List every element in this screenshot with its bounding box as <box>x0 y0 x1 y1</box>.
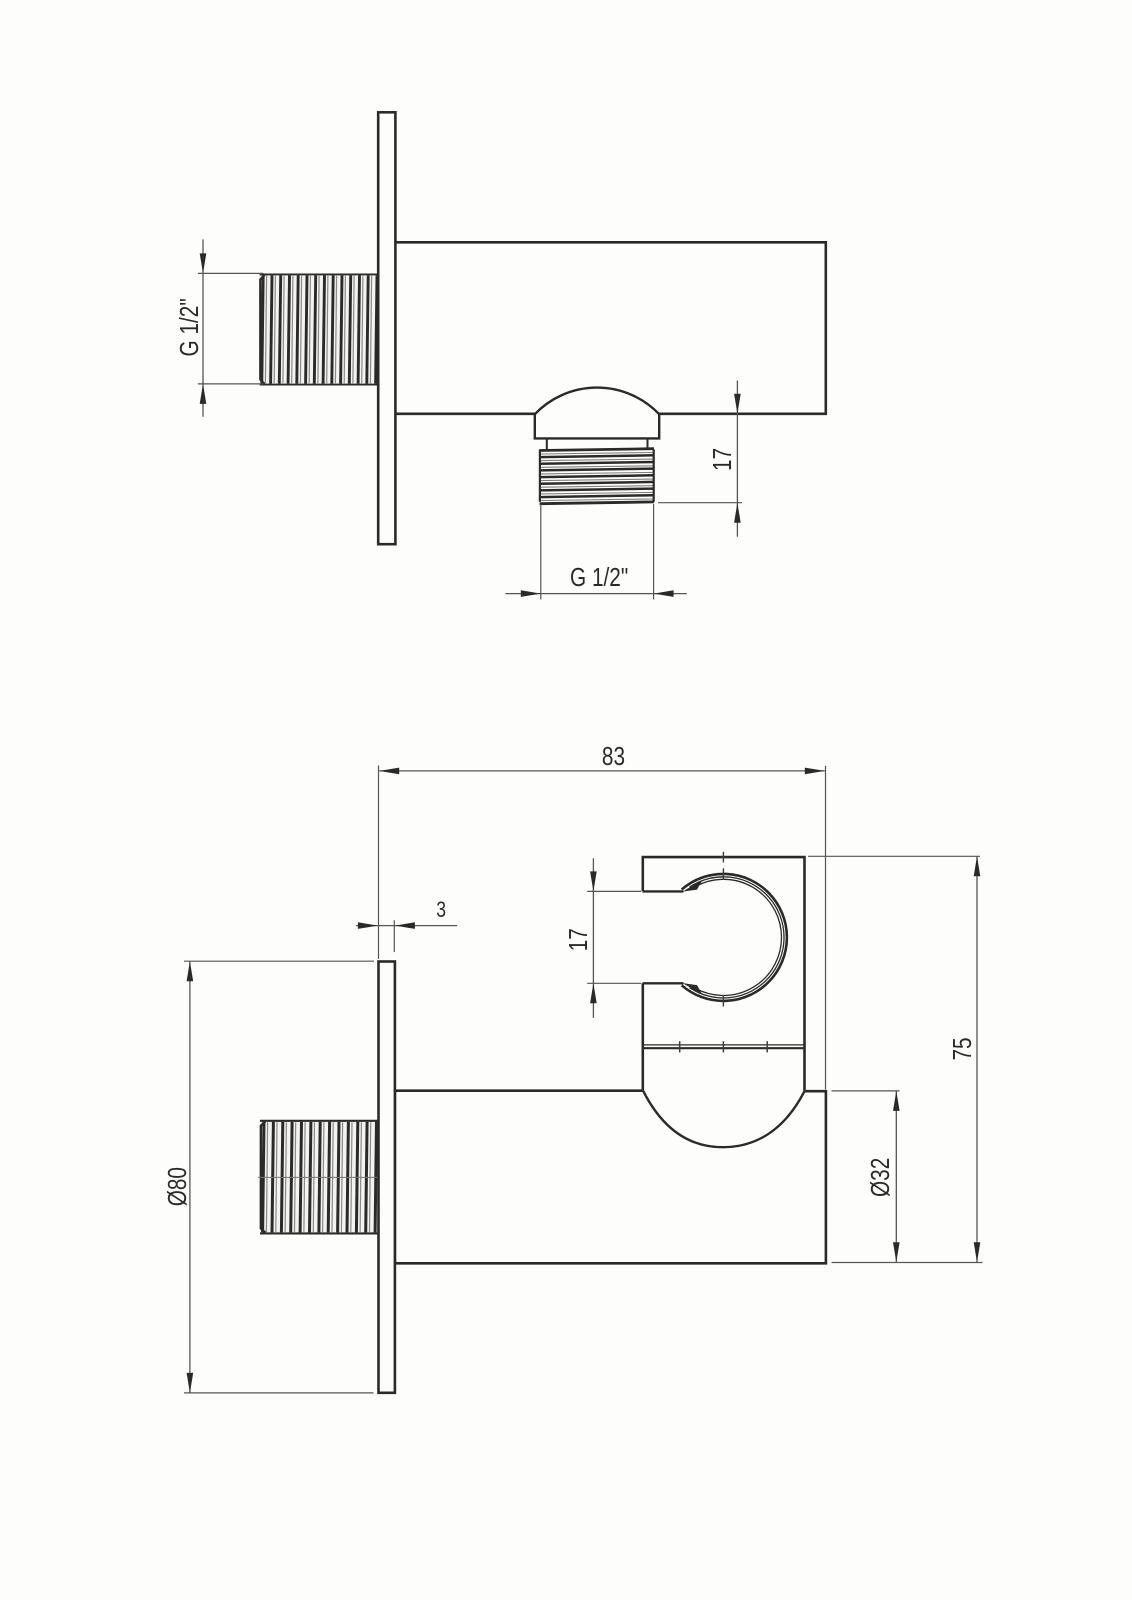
svg-text:G 1/2": G 1/2" <box>570 563 628 592</box>
svg-text:17: 17 <box>708 448 737 471</box>
svg-text:3: 3 <box>436 898 446 922</box>
svg-text:Ø32: Ø32 <box>866 1158 895 1197</box>
svg-text:Ø80: Ø80 <box>163 1167 192 1206</box>
svg-text:G 1/2": G 1/2" <box>175 298 204 356</box>
svg-text:75: 75 <box>948 1037 977 1060</box>
svg-text:83: 83 <box>602 742 625 771</box>
svg-text:17: 17 <box>564 928 593 951</box>
